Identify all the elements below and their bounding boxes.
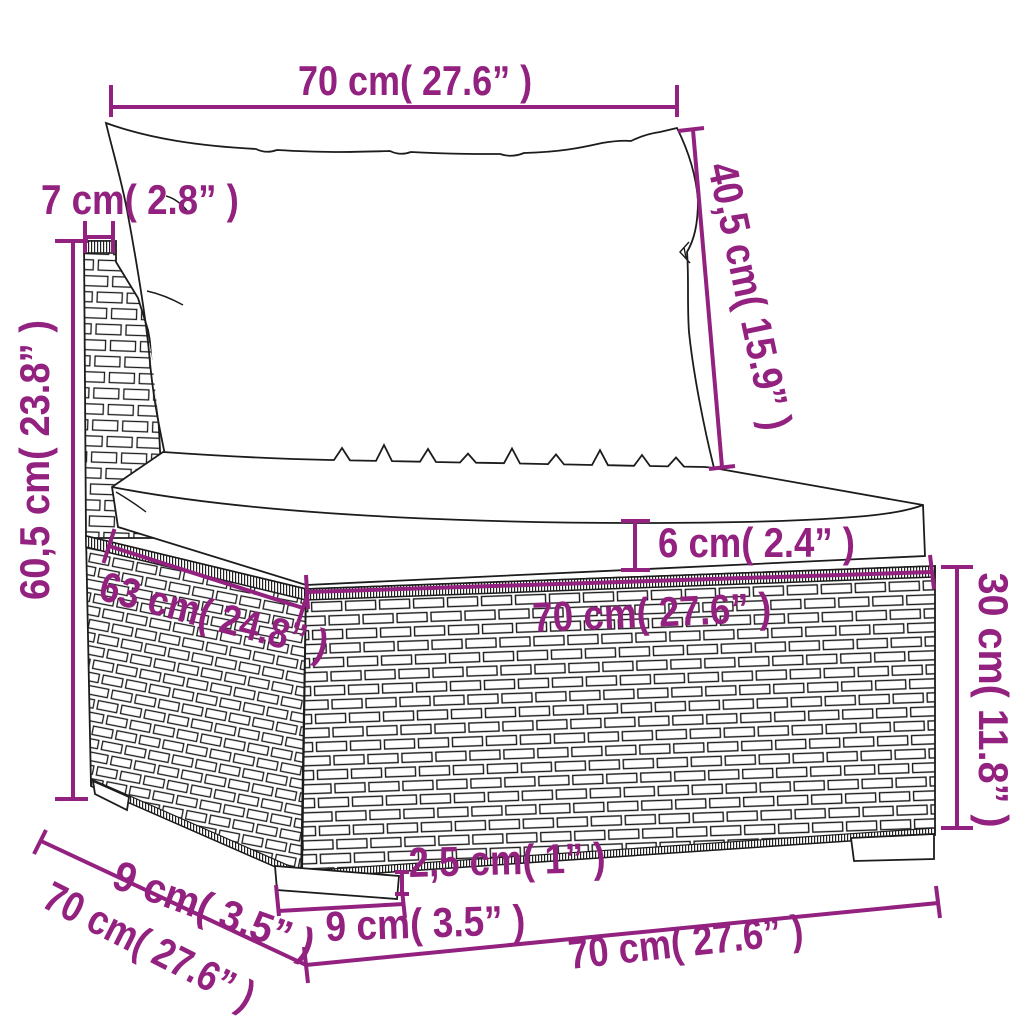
svg-text:7 cm( 2.8” ): 7 cm( 2.8” ): [41, 177, 239, 224]
svg-text:60,5 cm( 23.8” ): 60,5 cm( 23.8” ): [11, 320, 58, 600]
svg-text:9 cm( 3.5” ): 9 cm( 3.5” ): [325, 897, 526, 951]
svg-text:70 cm( 27.6” ): 70 cm( 27.6” ): [298, 58, 532, 104]
svg-text:2,5 cm( 1” ): 2,5 cm( 1” ): [408, 835, 606, 887]
svg-text:30 cm( 11.8” ): 30 cm( 11.8” ): [970, 572, 1017, 827]
svg-text:6 cm( 2.4” ): 6 cm( 2.4” ): [658, 520, 855, 567]
